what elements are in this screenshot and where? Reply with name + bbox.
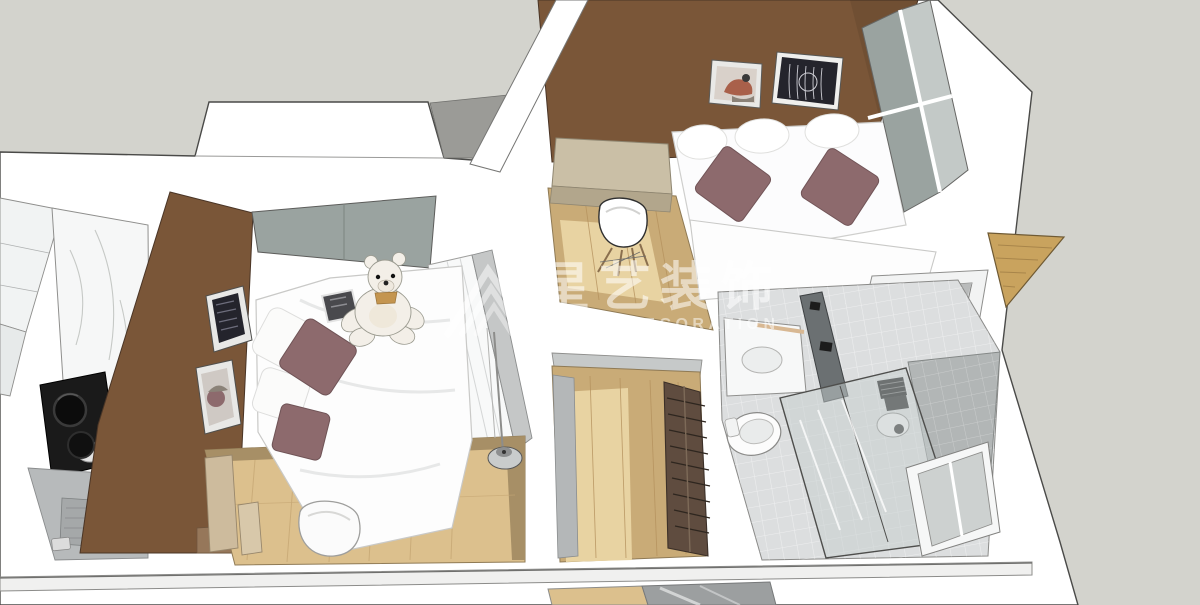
hallway — [552, 353, 710, 562]
washbasin-counter — [724, 318, 806, 396]
apartment-3d-scene — [0, 0, 1200, 605]
art-frame-figure — [709, 60, 762, 108]
bedside-unit-small — [238, 502, 262, 555]
render-viewport: 星艺装饰 XINGYI DECORATION — [0, 0, 1200, 605]
pan — [68, 432, 94, 458]
art-frame-dark — [206, 286, 252, 352]
art-frame-sketch — [772, 52, 843, 110]
bathroom — [718, 280, 1000, 560]
teddy-scarf — [375, 292, 397, 304]
bedside-unit — [205, 455, 238, 552]
